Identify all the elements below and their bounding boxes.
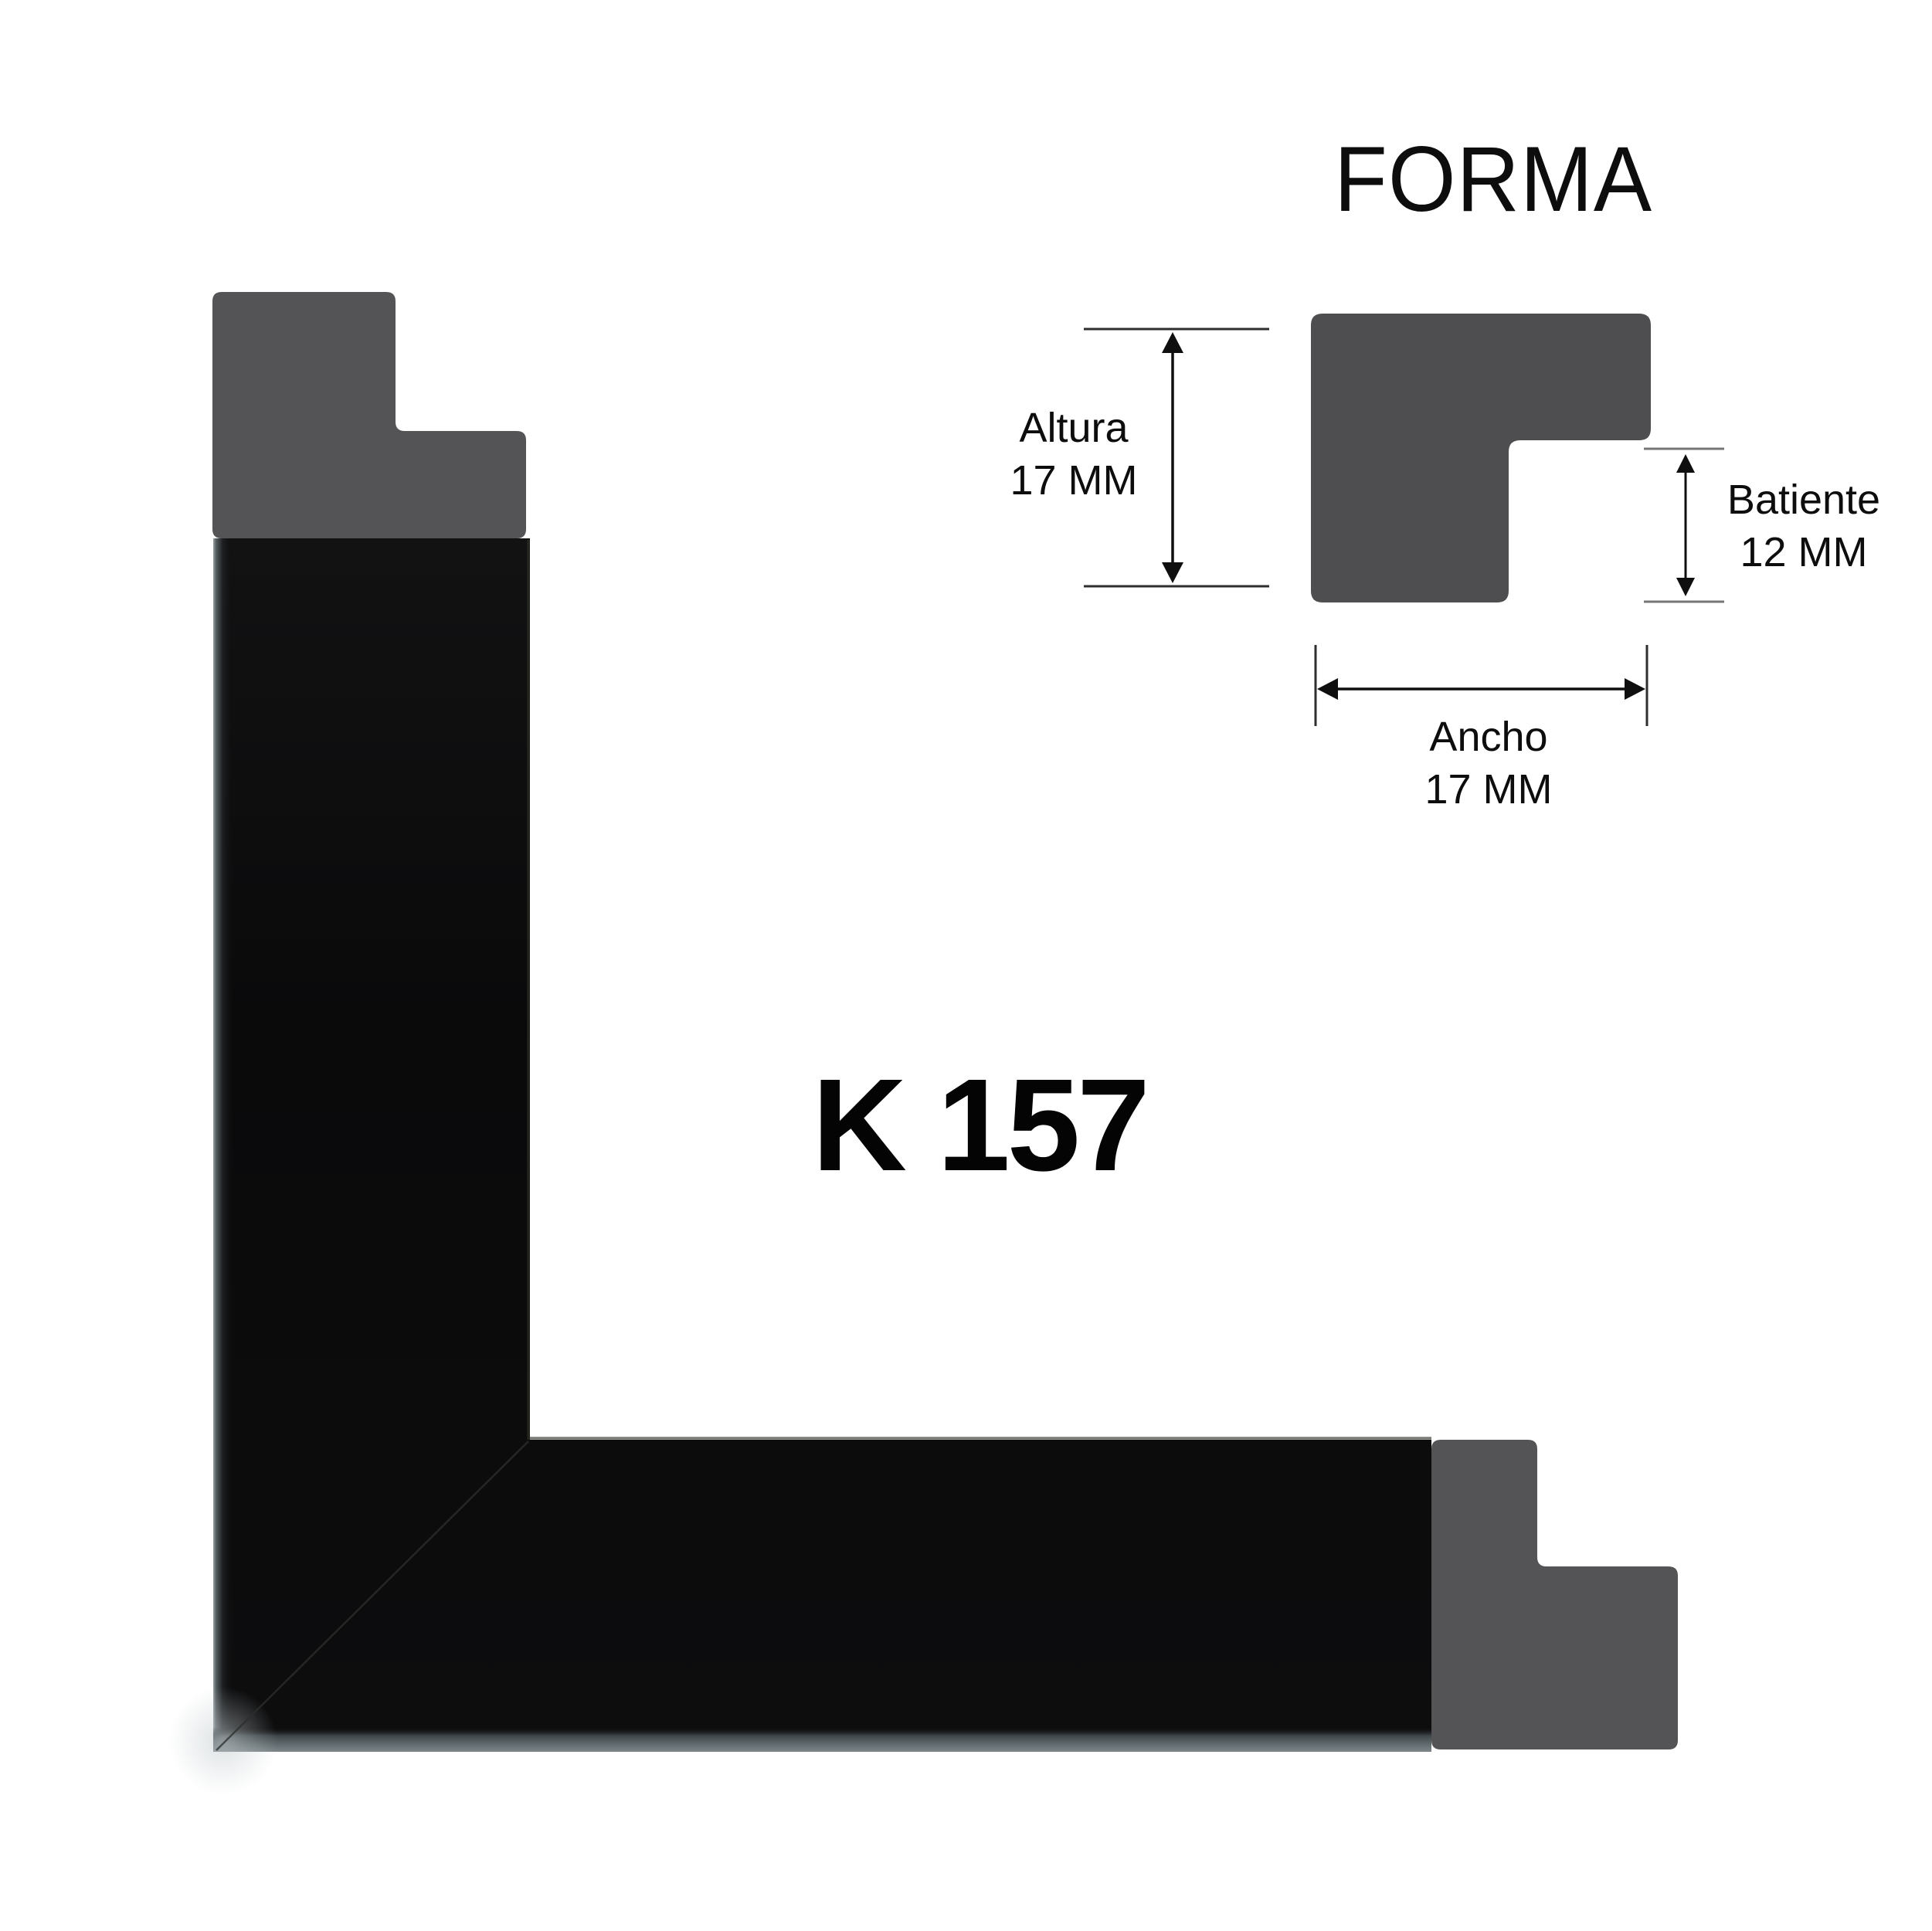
ancho-arrowhead-left-icon xyxy=(1317,678,1338,700)
altura-label: Altura xyxy=(1010,402,1137,454)
ancho-label-block: Ancho 17 MM xyxy=(1424,711,1552,816)
batiente-dimension xyxy=(1644,449,1724,602)
batiente-value: 12 MM xyxy=(1727,526,1880,579)
batiente-label-block: Batiente 12 MM xyxy=(1727,473,1880,579)
moulding-graphic xyxy=(0,0,1932,1931)
profile-diagram xyxy=(1084,314,1724,726)
profile-endcap-top-left xyxy=(212,292,526,538)
batiente-arrowhead-down-icon xyxy=(1676,578,1695,596)
ancho-value: 17 MM xyxy=(1424,763,1552,816)
product-spec-sheet: FORMA Altura 17 MM Batiente 12 MM Ancho … xyxy=(0,0,1932,1931)
frame-corner-reflection xyxy=(169,1687,277,1795)
product-code: K 157 xyxy=(812,1060,1147,1191)
altura-arrowhead-up-icon xyxy=(1162,332,1183,353)
altura-value: 17 MM xyxy=(1010,454,1137,507)
diagram-title: FORMA xyxy=(1334,133,1652,226)
ancho-label: Ancho xyxy=(1424,711,1552,763)
ancho-arrowhead-right-icon xyxy=(1625,678,1645,700)
batiente-label: Batiente xyxy=(1727,473,1880,526)
batiente-arrowhead-up-icon xyxy=(1676,454,1695,473)
frame-left-edge-highlight xyxy=(213,538,234,1752)
altura-label-block: Altura 17 MM xyxy=(1010,402,1137,507)
altura-arrowhead-down-icon xyxy=(1162,562,1183,583)
frame-inner-edge-highlight xyxy=(528,540,1431,1438)
profile-endcap-bottom-right xyxy=(1431,1440,1678,1749)
profile-cross-section-shape xyxy=(1311,314,1651,602)
frame-bottom-edge-highlight xyxy=(213,1727,1431,1752)
